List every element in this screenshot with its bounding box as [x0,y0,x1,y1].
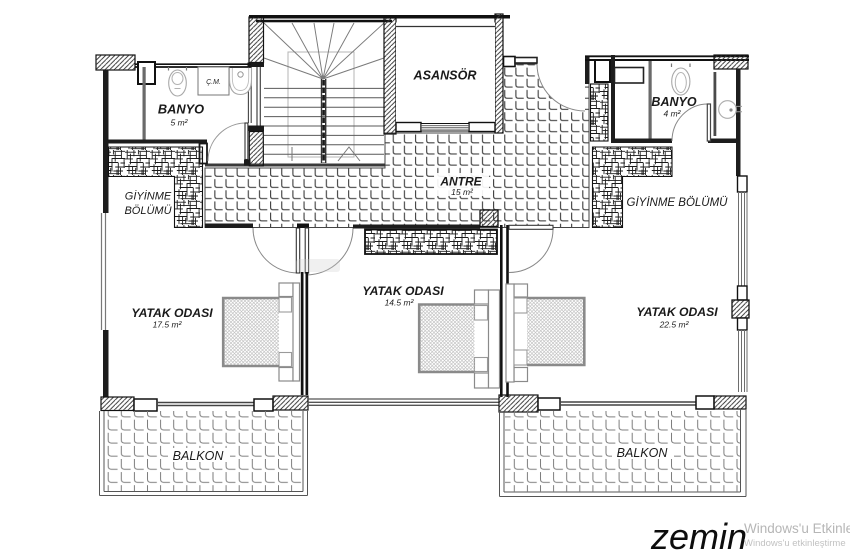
svg-text:15 m²: 15 m² [451,187,474,197]
svg-text:GİYİNME BÖLÜMÜ: GİYİNME BÖLÜMÜ [627,197,729,209]
svg-text:YATAK ODASI: YATAK ODASI [362,284,444,298]
svg-text:17.5 m²: 17.5 m² [153,320,183,330]
svg-text:Ç.M.: Ç.M. [206,79,221,86]
svg-text:ASANSÖR: ASANSÖR [413,68,478,83]
svg-text:YATAK ODASI: YATAK ODASI [636,305,718,319]
svg-text:BALKON: BALKON [173,449,225,463]
svg-text:Windows'u etkinleştirme: Windows'u etkinleştirme [744,538,846,549]
svg-text:BANYO: BANYO [158,102,204,117]
svg-text:14.5 m²: 14.5 m² [385,298,415,308]
svg-text:BÖLÜMÜ: BÖLÜMÜ [124,205,171,217]
svg-text:BALKON: BALKON [617,446,669,460]
svg-text:22.5 m²: 22.5 m² [659,320,690,330]
svg-text:Windows'u Etkinleş: Windows'u Etkinleş [744,521,850,536]
svg-text:GİYİNME: GİYİNME [125,191,172,203]
svg-text:5 m²: 5 m² [171,118,189,128]
svg-text:4 m²: 4 m² [664,109,682,119]
svg-text:zemin: zemin [650,516,747,550]
svg-text:BANYO: BANYO [651,95,696,109]
svg-text:YATAK ODASI: YATAK ODASI [131,306,213,320]
